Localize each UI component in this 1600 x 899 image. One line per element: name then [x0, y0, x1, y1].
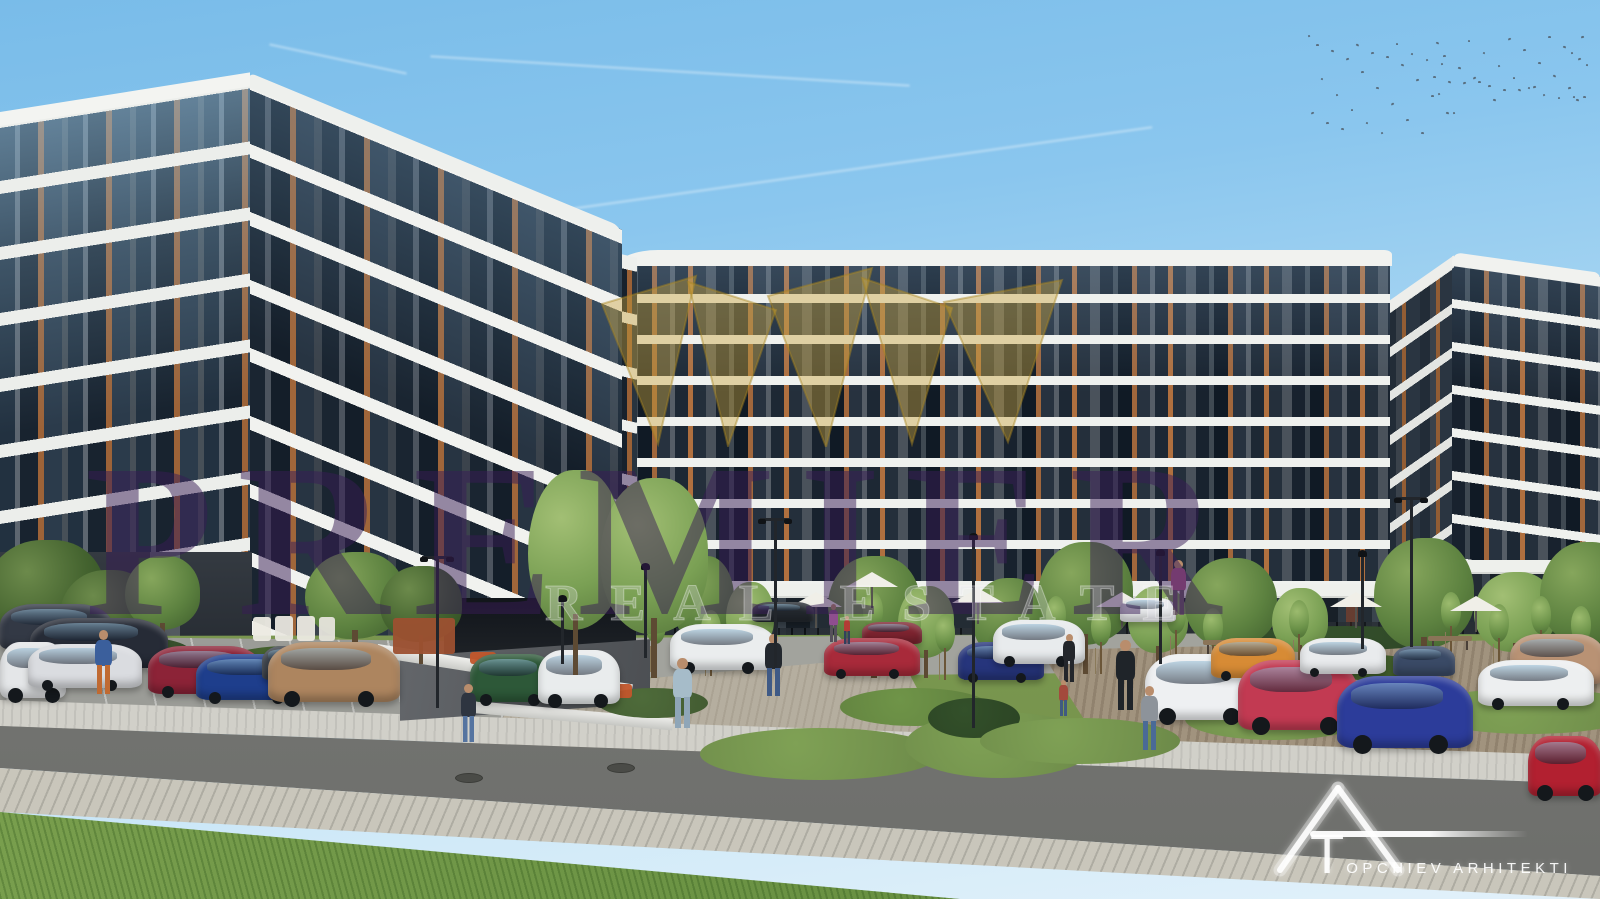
vehicle-wheel [480, 694, 492, 706]
lamp-pole [1361, 553, 1364, 649]
lamp-head [1358, 550, 1367, 557]
person-torso [461, 693, 476, 717]
person-legs [1118, 679, 1133, 711]
vehicle-wheel [8, 688, 23, 703]
person-torso [1059, 685, 1068, 700]
vehicle-wheel [836, 669, 846, 679]
watermark-crown-icon [600, 262, 1070, 447]
person-head [1145, 686, 1155, 696]
vehicle [1337, 676, 1473, 748]
person-legs [675, 697, 690, 729]
vehicle-wheel [594, 694, 608, 708]
person-legs [97, 665, 110, 694]
vehicle-wheel [1492, 698, 1504, 710]
person-legs [1143, 721, 1156, 750]
vehicle-wheel [358, 691, 374, 707]
sapling-canopy [1531, 596, 1551, 634]
vehicle-wheel [1557, 698, 1569, 710]
person-legs [463, 716, 475, 742]
manhole-cover [607, 763, 635, 773]
person-torso [1141, 696, 1157, 723]
umbrella-pole [1475, 611, 1477, 632]
bush [700, 728, 940, 780]
bench-leg [1466, 641, 1468, 650]
person-legs [1064, 660, 1074, 682]
vehicle-wheel [209, 692, 221, 704]
lamp-pole [1410, 497, 1413, 647]
vehicle-wheel [742, 662, 754, 674]
umbrella [1450, 596, 1502, 632]
person [460, 684, 477, 742]
architect-logo: TOPCHIEV ARHITEKTI [1240, 742, 1600, 887]
vehicle-wheel [1320, 717, 1338, 735]
umbrella-canopy [1450, 596, 1502, 611]
person-legs [767, 668, 780, 696]
vehicle [1478, 660, 1594, 706]
manhole-cover [455, 773, 483, 783]
vehicle [1393, 646, 1455, 676]
vehicle-wheel [162, 686, 174, 698]
watermark-tagline-text: REAL ESTATE [545, 578, 1205, 630]
street-lamp [1394, 497, 1428, 647]
person-head [464, 684, 473, 693]
vehicle-wheel [1016, 673, 1026, 683]
logo-text: TOPCHIEV ARHITEKTI [1310, 826, 1572, 882]
vehicle-glass [1490, 665, 1569, 682]
person [1058, 680, 1069, 716]
vehicle-wheel [1223, 708, 1240, 725]
person [1140, 686, 1159, 750]
vehicle-glass [1399, 649, 1441, 660]
vehicle-wheel [1159, 708, 1176, 725]
vehicle-wheel [42, 680, 53, 691]
vehicle-glass [1520, 639, 1585, 657]
person-torso [673, 669, 691, 698]
architectural-render: PREMIER REAL ESTATE TOPCHIEV ARHITEKTI [0, 0, 1600, 899]
person [672, 658, 693, 728]
street-lamp [1345, 553, 1379, 649]
lamp-head [1420, 498, 1428, 503]
vehicle-wheel [548, 694, 562, 708]
person-legs [1060, 700, 1068, 716]
vehicle-glass [1351, 683, 1443, 709]
vehicle-wheel [284, 691, 300, 707]
lamp-head [1394, 498, 1402, 503]
